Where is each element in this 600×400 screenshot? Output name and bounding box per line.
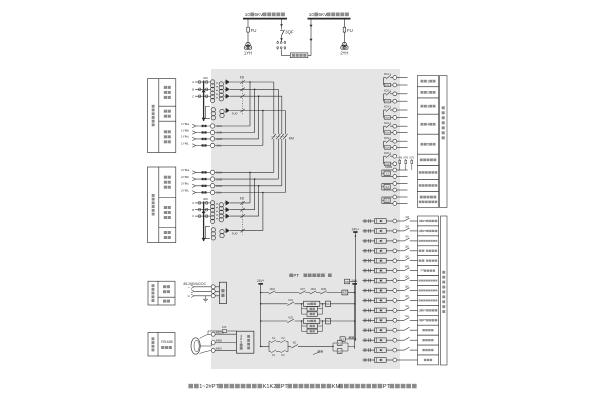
svg-text:SA: SA — [405, 314, 409, 318]
svg-text:PT: PT — [423, 229, 427, 233]
svg-text:K1K2: K1K2 — [263, 384, 277, 390]
svg-text:PT: PT — [423, 318, 427, 322]
svg-text:4: 4 — [427, 122, 429, 126]
svg-text:WD: WD — [405, 264, 409, 268]
svg-text:-: - — [189, 289, 190, 293]
svg-text:K2: K2 — [326, 319, 330, 323]
svg-text:QK: QK — [405, 284, 409, 288]
svg-text:A: A — [192, 80, 194, 84]
svg-text:2YMa: 2YMa — [181, 168, 189, 172]
svg-text:2RD: 2RD — [203, 198, 208, 201]
svg-text:1RD: 1RD — [203, 77, 208, 80]
svg-text:PT: PT — [423, 308, 427, 312]
svg-text:10: 10 — [245, 12, 251, 17]
svg-text:C: C — [192, 94, 194, 98]
svg-text:3U0': 3U0' — [232, 111, 239, 115]
svg-text:24V+: 24V+ — [257, 279, 265, 283]
svg-text:K01: K01 — [288, 298, 293, 302]
svg-text:B: B — [192, 87, 194, 91]
svg-text:GJ: GJ — [385, 198, 389, 202]
svg-text:2YML: 2YML — [181, 188, 189, 192]
svg-text:1UC: 1UC — [216, 137, 223, 141]
svg-text:K1: K1 — [326, 302, 330, 306]
svg-text:C: C — [192, 214, 194, 218]
svg-text:2YMb: 2YMb — [181, 175, 189, 179]
svg-text:5: 5 — [427, 142, 429, 146]
svg-text:3U0': 3U0' — [232, 231, 239, 235]
svg-text:5: 5 — [240, 340, 242, 344]
svg-text:PT: PT — [383, 384, 391, 390]
svg-text:QK: QK — [405, 255, 409, 259]
svg-text:24V+: 24V+ — [352, 227, 360, 231]
svg-text:2: 2 — [427, 91, 429, 95]
svg-text:1M: 1M — [405, 215, 409, 219]
svg-text:485B: 485B — [216, 339, 222, 343]
svg-text:85-265VAC/DC: 85-265VAC/DC — [184, 282, 207, 286]
svg-text:24V-: 24V- — [351, 279, 358, 283]
svg-text:1UL: 1UL — [216, 144, 222, 148]
svg-text:1YMb: 1YMb — [181, 128, 189, 132]
svg-text:PT: PT — [281, 384, 289, 390]
svg-text:1UA: 1UA — [216, 124, 222, 128]
svg-text:A: A — [192, 201, 194, 205]
svg-text:2UA: 2UA — [216, 171, 222, 175]
svg-text:1YMc: 1YMc — [181, 135, 189, 139]
svg-text:3QF: 3QF — [285, 29, 294, 34]
svg-text:FU: FU — [251, 28, 257, 33]
svg-text:1KM: 1KM — [269, 287, 274, 291]
svg-text:KM: KM — [289, 137, 294, 141]
svg-text:2YMc: 2YMc — [181, 182, 189, 186]
svg-text:2UC: 2UC — [216, 184, 223, 188]
svg-text:KM6B: KM6B — [385, 165, 392, 169]
svg-text:QK: QK — [405, 274, 409, 278]
svg-text:M70: M70 — [404, 157, 409, 159]
svg-text:PT: PT — [421, 269, 425, 273]
svg-text:KD: KD — [240, 76, 245, 80]
svg-text:485A: 485A — [216, 347, 222, 351]
svg-text:SA: SA — [405, 235, 409, 239]
svg-text:SA: SA — [405, 304, 409, 308]
svg-text:K07: K07 — [300, 287, 305, 291]
svg-text:QK: QK — [405, 245, 409, 249]
svg-text:FU: FU — [347, 28, 353, 33]
svg-text:KD: KD — [293, 341, 297, 345]
svg-text:KD: KD — [343, 291, 347, 295]
svg-text:G: G — [188, 294, 190, 298]
svg-text:1~2#PT: 1~2#PT — [199, 384, 219, 390]
svg-text:2UL: 2UL — [216, 191, 222, 195]
svg-text:1YMa: 1YMa — [181, 122, 189, 126]
svg-text:1: 1 — [427, 79, 429, 83]
svg-text:B: B — [192, 208, 194, 212]
svg-text:1UB: 1UB — [216, 131, 222, 135]
svg-text:103: 103 — [222, 325, 227, 329]
svg-text:M71: M71 — [410, 157, 415, 159]
svg-text:3: 3 — [427, 104, 429, 108]
svg-text:10: 10 — [309, 12, 315, 17]
svg-text:KD: KD — [345, 280, 349, 284]
svg-text:PT: PT — [423, 219, 427, 223]
svg-text:K02: K02 — [288, 315, 293, 319]
svg-text:1YH: 1YH — [244, 51, 252, 56]
svg-text:2UB: 2UB — [216, 177, 222, 181]
svg-text:RS485: RS485 — [161, 340, 173, 344]
svg-text:2YH: 2YH — [340, 51, 348, 56]
svg-text:1KM: 1KM — [310, 287, 315, 291]
svg-text:QK: QK — [405, 294, 409, 298]
svg-text:KD: KD — [240, 197, 245, 201]
svg-text:2KM: 2KM — [321, 287, 326, 291]
svg-text:1YML: 1YML — [181, 141, 189, 145]
svg-text:PT: PT — [293, 273, 299, 278]
svg-text:2M: 2M — [405, 225, 409, 229]
